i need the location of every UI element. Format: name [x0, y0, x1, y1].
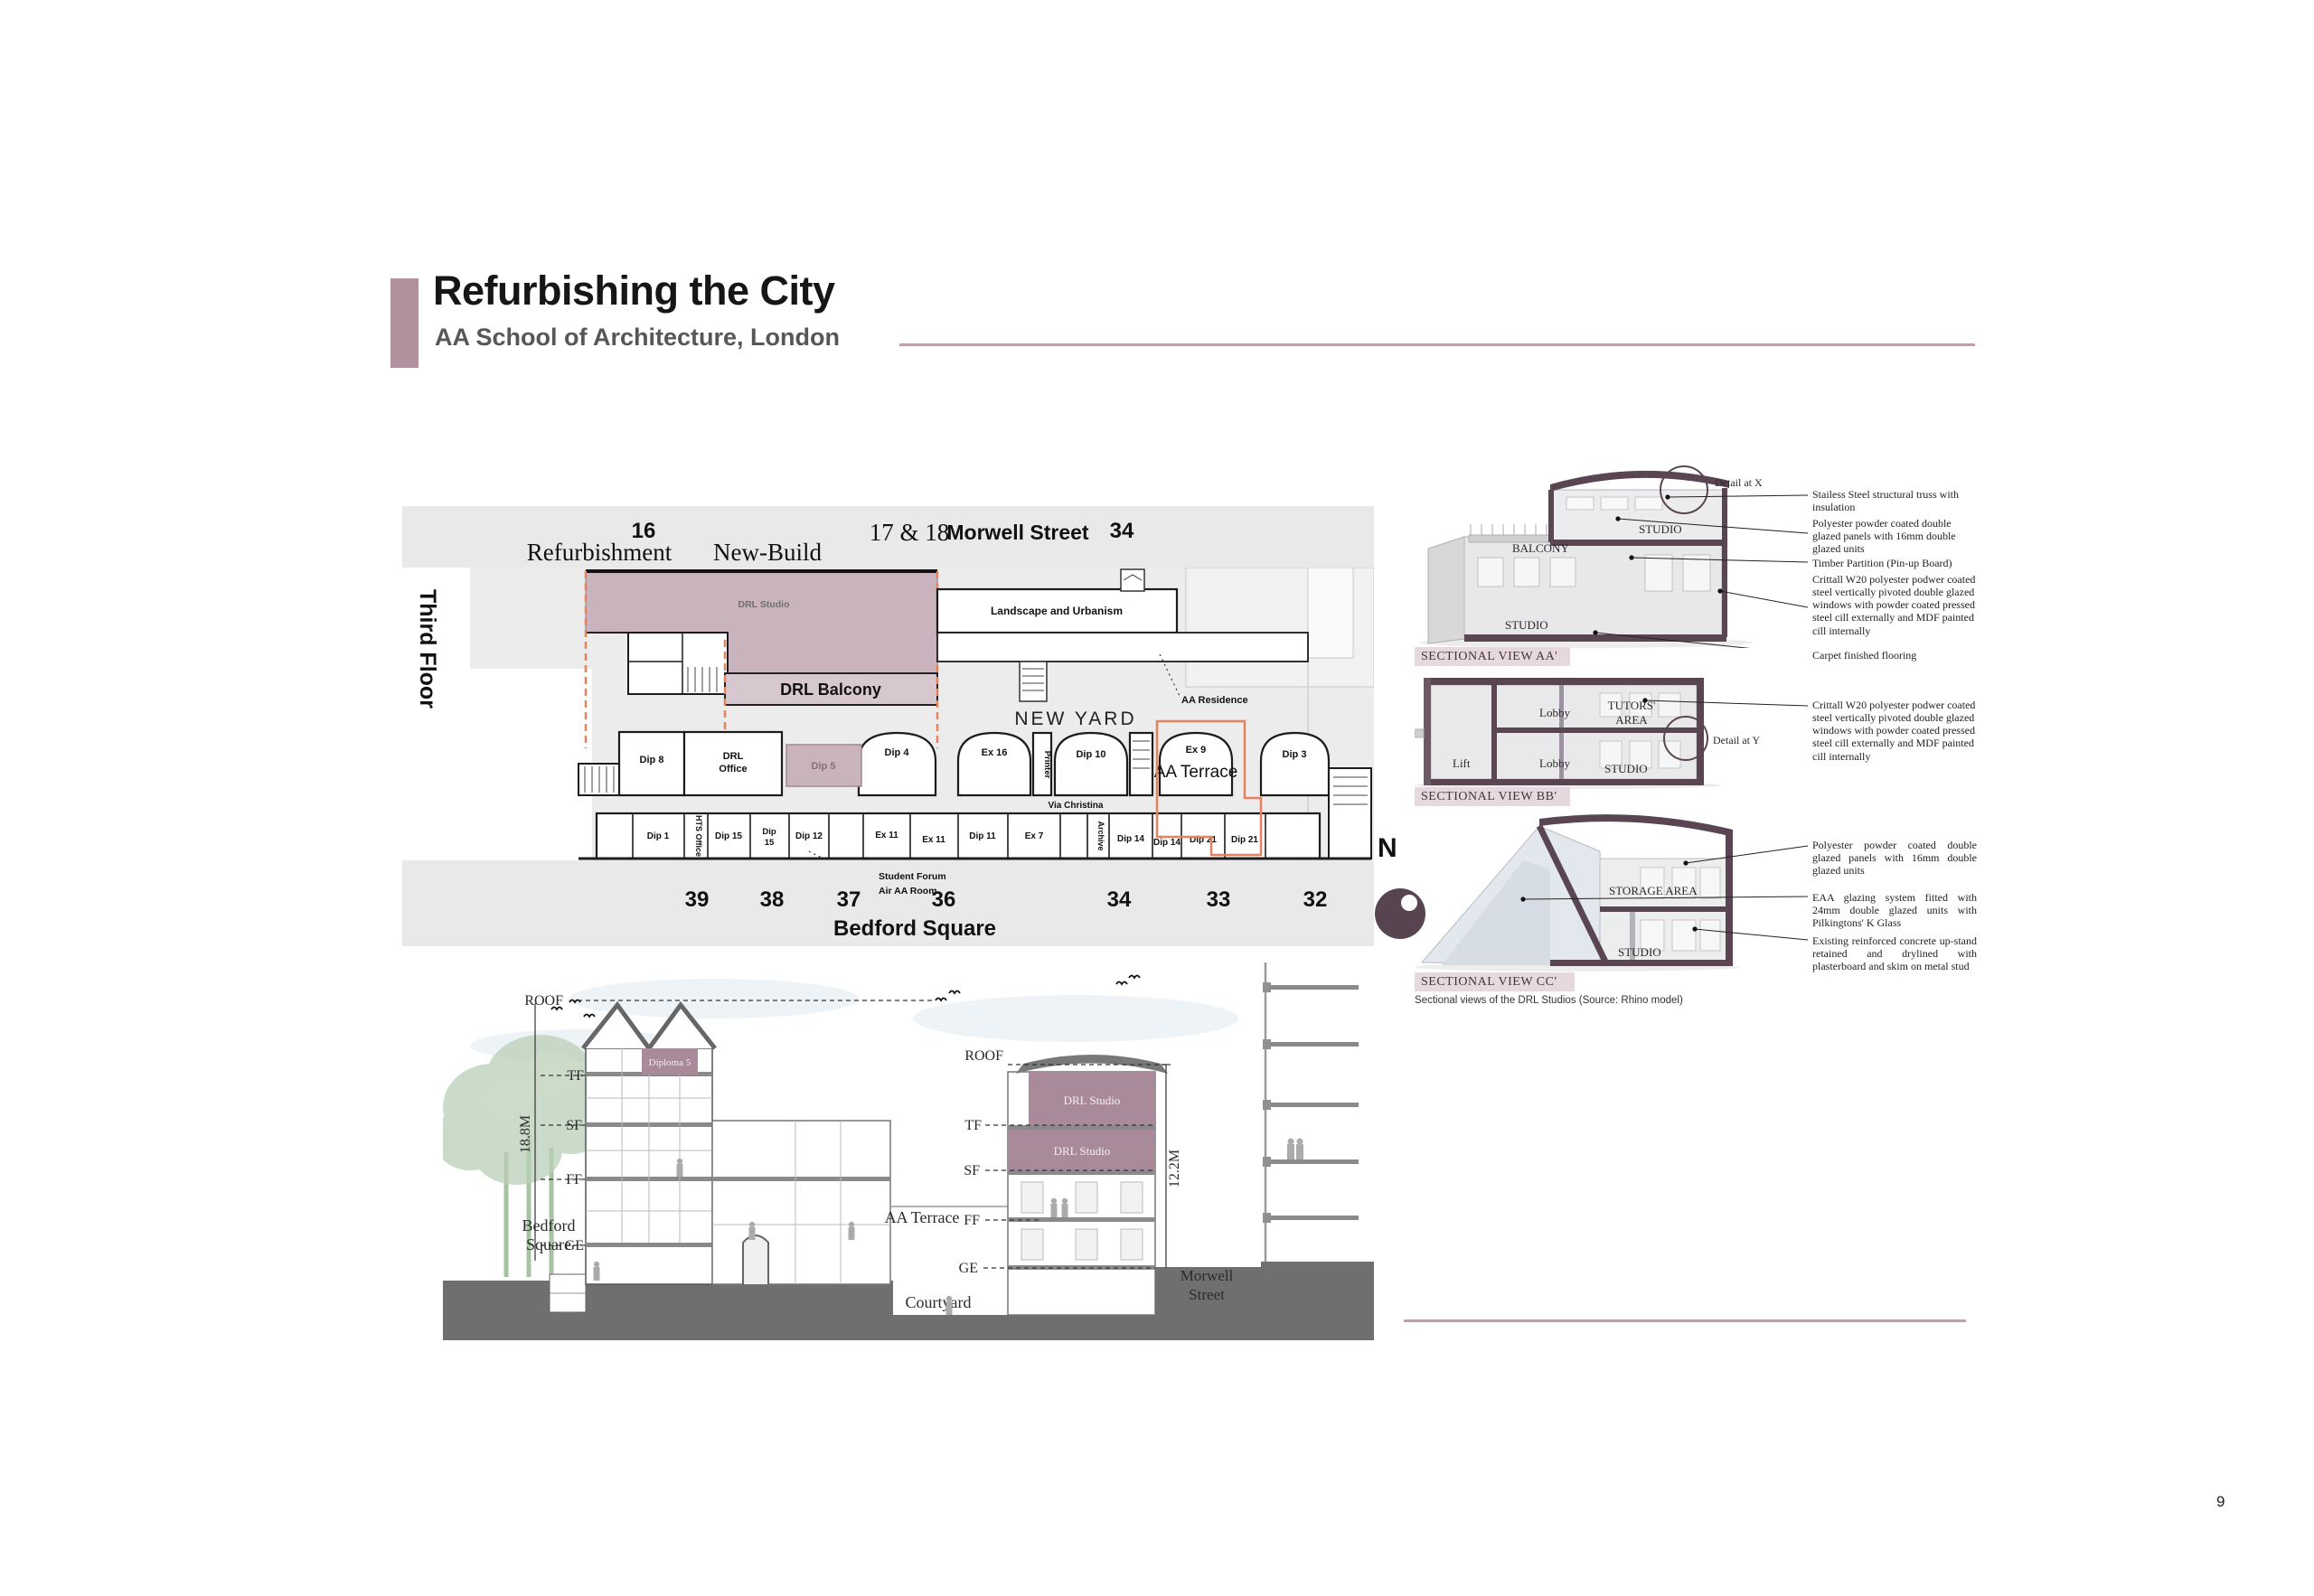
label-studio: STUDIO: [1618, 945, 1661, 959]
windows-upper: [1566, 497, 1662, 510]
tall-building-slabs: [1265, 985, 1359, 1220]
annotation: Carpet finished flooring: [1812, 649, 1977, 662]
room-label-archive: Archive: [1096, 821, 1105, 850]
ground-under-building: [1008, 1315, 1155, 1340]
label-new-build: New-Build: [713, 539, 822, 567]
label-lift: Lift: [1453, 756, 1471, 770]
room-label-drl-upper: DRL Studio: [1064, 1094, 1121, 1107]
cut-column: [1548, 490, 1554, 542]
room-label-dip15b-2: 15: [765, 838, 775, 848]
annotation: Polyester powder coated double glazed pa…: [1812, 517, 1977, 555]
arch-door: [743, 1235, 768, 1284]
cut-column: [1726, 831, 1733, 965]
label-tutors-2: AREA: [1615, 713, 1648, 727]
room-label-dip15a: Dip 15: [715, 831, 742, 841]
room-label-aa-residence: AA Residence: [1181, 695, 1248, 706]
label-lobby-upper: Lobby: [1539, 706, 1570, 719]
balcony-railing: [1471, 524, 1547, 535]
cut-floor-mid: [1550, 540, 1726, 546]
header-rule: [899, 343, 1975, 346]
curved-roof: [1539, 814, 1733, 837]
ground-right: [1261, 1262, 1374, 1340]
annex-slab: [712, 1177, 890, 1181]
stair-mid: [1020, 662, 1047, 701]
cut-column: [1722, 488, 1727, 637]
annotation: Stailess Steel structural truss with ins…: [1812, 488, 1977, 513]
ground-courtyard: [890, 1315, 1008, 1340]
ground-left: [443, 1281, 893, 1340]
cut-floor-mid: [1600, 906, 1731, 912]
floor-title-vertical: Third Floor: [414, 589, 440, 709]
page-title: Refurbishing the City: [433, 268, 835, 315]
stair-right: [1329, 768, 1371, 859]
slab: [1008, 1170, 1155, 1175]
street-number-33: 33: [1207, 887, 1231, 913]
floor-label-roof-right: ROOF: [964, 1048, 1003, 1064]
room-label-ex11a: Ex 11: [875, 831, 898, 840]
header-accent-bar: [390, 278, 419, 368]
compass-pointer: [1401, 895, 1417, 911]
floor-label-sf-left: SF: [566, 1118, 582, 1133]
label-courtyard: Courtyard: [906, 1293, 972, 1311]
walkway: [1415, 729, 1424, 737]
corridor-label-via-christina: Via Christina: [1049, 801, 1104, 811]
floor-label-ff-left: FF: [566, 1172, 582, 1188]
street-number-32: 32: [1303, 887, 1328, 913]
room-label-ex9: Ex 9: [1186, 745, 1207, 756]
floor-label-ff-right: FF: [964, 1213, 980, 1228]
sectional-view-bb: Lobby TUTORS' AREA Lift Lobby STUDIO Det…: [1415, 673, 1980, 786]
street-number-34: 34: [1110, 519, 1134, 544]
label-studio: STUDIO: [1604, 762, 1648, 775]
room-label-dip14b: Dip 14: [1153, 838, 1181, 848]
label-morwell-1: Morwell: [1181, 1267, 1234, 1284]
room-label-dip5: Dip 5: [812, 761, 836, 772]
footer-rule: [1404, 1319, 1966, 1322]
room-label-drl-office-1: DRL: [723, 751, 744, 762]
page-subtitle: AA School of Architecture, London: [435, 324, 840, 352]
room-label-drl-office-2: Office: [719, 764, 747, 775]
floor-label-tf-left: TF: [567, 1068, 584, 1084]
room-label-dip15b-1: Dip: [762, 827, 776, 837]
street-section-drawing: ROOF TF SF FF GE 18.8M Diploma 5 Bedford…: [443, 962, 1374, 1351]
room-label-diploma5: Diploma 5: [649, 1057, 691, 1068]
cut-floor-base: [1464, 634, 1726, 642]
stair-core: [628, 633, 728, 694]
room-label-dip4: Dip 4: [885, 747, 910, 758]
third-floor-plan: DRL Studio DRL Balcony Landscape and Urb…: [402, 568, 1374, 860]
floor-label-roof-left: ROOF: [524, 993, 563, 1009]
north-compass-icon: [1372, 886, 1428, 942]
sectional-view-aa: BALCONY STUDIO STUDIO Detail at X Staile…: [1415, 463, 1980, 646]
room-label-ex11b: Ex 11: [922, 835, 945, 845]
label-aa-terrace: AA Terrace: [885, 1208, 960, 1226]
caption-view-cc: SECTIONAL VIEW CC': [1415, 972, 1575, 991]
cut-roof: [1424, 678, 1704, 685]
label-lobby-lower: Lobby: [1539, 756, 1570, 770]
label-bedford-square: Bedford Square: [833, 916, 996, 942]
building-side: [1428, 537, 1464, 643]
annex-building: [712, 1121, 890, 1284]
street-number-38: 38: [760, 887, 785, 913]
floor-label-sf-right: SF: [964, 1163, 980, 1178]
room-label-ex7: Ex 7: [1025, 831, 1044, 841]
dim-label-right: 12.2M: [1167, 1150, 1182, 1188]
room-label-dip12: Dip 12: [795, 831, 823, 841]
caption-view-bb: SECTIONAL VIEW BB': [1415, 787, 1570, 806]
room-label-drl-balcony: DRL Balcony: [780, 681, 881, 699]
cut-column: [1424, 678, 1431, 785]
sectional-view-cc: STORAGE AREA STUDIO Polyester powder coa…: [1415, 813, 1980, 972]
label-storage-area: STORAGE AREA: [1609, 884, 1698, 897]
floor-label-ge-right: GE: [959, 1261, 978, 1276]
callout-line1: Student Forum: [879, 870, 946, 885]
label-bedford-1: Bedford: [522, 1216, 576, 1235]
plan-top-band: 16 Refurbishment New-Build 17 & 18 Morwe…: [402, 506, 1374, 568]
corridor: [937, 633, 1308, 662]
callout-line2: Air AA Room: [879, 885, 946, 899]
annotation: Timber Partition (Pin-up Board): [1812, 557, 1977, 569]
street-number-39: 39: [685, 887, 710, 913]
street-number-34b: 34: [1107, 887, 1132, 913]
cut-floor-mid: [1491, 728, 1702, 733]
north-label: N: [1378, 833, 1397, 864]
room-label-aa-terrace: AA Terrace: [1154, 763, 1238, 782]
floor-label-tf-right: TF: [964, 1118, 982, 1133]
annotation: Existing reinforced concrete up-stand re…: [1812, 934, 1977, 972]
street-number-17-18: 17 & 18: [870, 519, 950, 547]
cut-base: [1424, 779, 1704, 785]
room-label-hts-office: HTS Office: [694, 815, 703, 857]
room-label-dip8: Dip 8: [640, 755, 664, 765]
annotation: Crittall W20 polyester podwer coated ste…: [1812, 573, 1977, 637]
room-label-dip11: Dip 11: [969, 831, 996, 841]
cut-base: [1550, 960, 1733, 966]
plan-rear-room: [1308, 568, 1353, 658]
portfolio-page: Refurbishing the City AA School of Archi…: [0, 0, 2314, 1596]
page-number: 9: [2216, 1493, 2225, 1511]
room-label-drl-studio: DRL Studio: [738, 599, 790, 610]
annotation: Polyester powder coated double glazed pa…: [1812, 839, 1977, 877]
room-label-printer: Printer: [1042, 751, 1052, 779]
room-label-dip14a: Dip 14: [1117, 834, 1144, 844]
label-studio-upper: STUDIO: [1639, 522, 1682, 536]
label-detail-x: Detail at X: [1715, 476, 1763, 489]
slab-nibs: [1263, 982, 1271, 1223]
room-label-landscape: Landscape and Urbanism: [991, 605, 1123, 617]
compass-body: [1375, 888, 1425, 939]
street-number-37: 37: [837, 887, 861, 913]
room-label-drl-lower: DRL Studio: [1054, 1144, 1111, 1158]
label-tutors-1: TUTORS': [1608, 699, 1656, 712]
room-label-ex16: Ex 16: [982, 747, 1008, 758]
annotation: EAA glazing system fitted with 24mm doub…: [1812, 891, 1977, 929]
label-detail-y: Detail at Y: [1713, 734, 1761, 746]
label-morwell-street: Morwell Street: [946, 521, 1088, 545]
room-label-dip1: Dip 1: [647, 831, 670, 841]
plan-callout: Student Forum Air AA Room: [879, 870, 946, 899]
label-bedford-2: Square: [526, 1235, 571, 1253]
label-refurbishment: Refurbishment: [527, 539, 672, 567]
slab: [1008, 1125, 1155, 1130]
annotation: Crittall W20 polyester podwer coated ste…: [1812, 699, 1977, 763]
sections-note: Sectional views of the DRL Studios (Sour…: [1415, 995, 1683, 1006]
label-balcony: BALCONY: [1512, 541, 1569, 555]
caption-view-aa: SECTIONAL VIEW AA': [1415, 647, 1570, 666]
label-studio-lower: STUDIO: [1505, 618, 1548, 632]
label-morwell-2: Street: [1189, 1286, 1225, 1303]
room-label-dip3: Dip 3: [1283, 749, 1307, 760]
label-new-yard: NEW YARD: [1014, 709, 1136, 729]
room-label-dip21b: Dip 21: [1231, 835, 1258, 845]
dim-label-left: 18.8M: [518, 1115, 533, 1153]
room-label-dip10: Dip 10: [1076, 749, 1105, 760]
